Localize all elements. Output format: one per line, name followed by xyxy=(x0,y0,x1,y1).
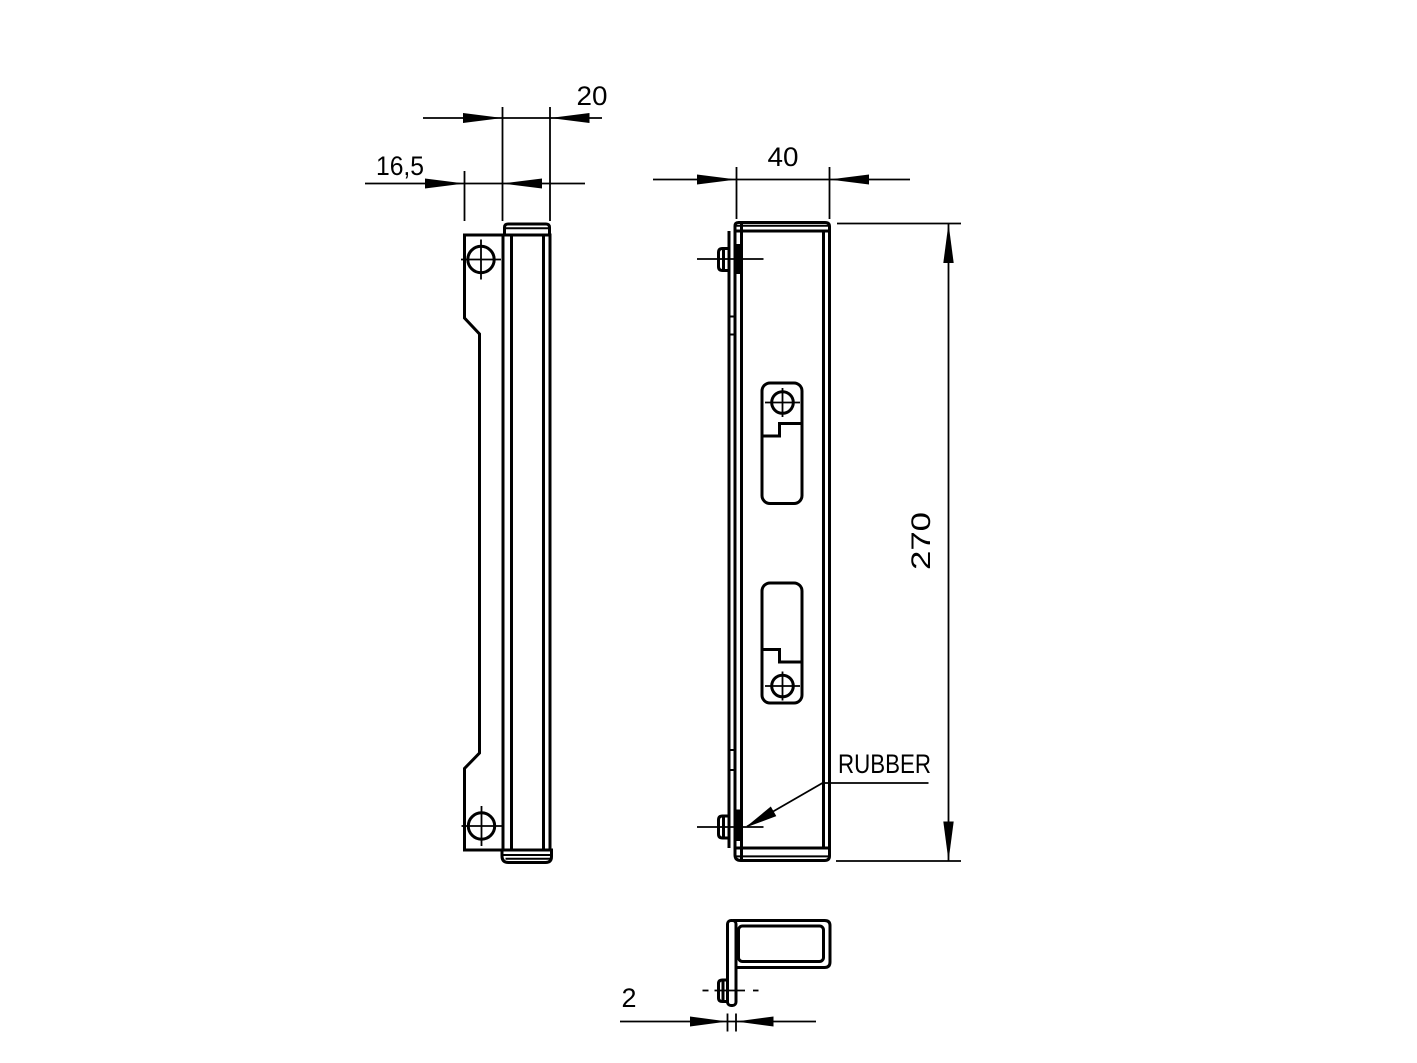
dimension-value-flange-offset: 16,5 xyxy=(376,151,424,181)
drawing-background xyxy=(0,0,1417,1063)
rubber-section-fill-bottom xyxy=(736,810,743,841)
dimension-value-width: 40 xyxy=(768,142,799,172)
technical-drawing-canvas: 20 16,5 40 270 2 RUB xyxy=(0,0,1417,1063)
rubber-label: RUBBER xyxy=(838,749,931,779)
dimension-value-depth: 20 xyxy=(577,81,608,111)
dimension-value-height: 270 xyxy=(906,512,936,570)
dimension-value-thickness: 2 xyxy=(622,983,637,1013)
